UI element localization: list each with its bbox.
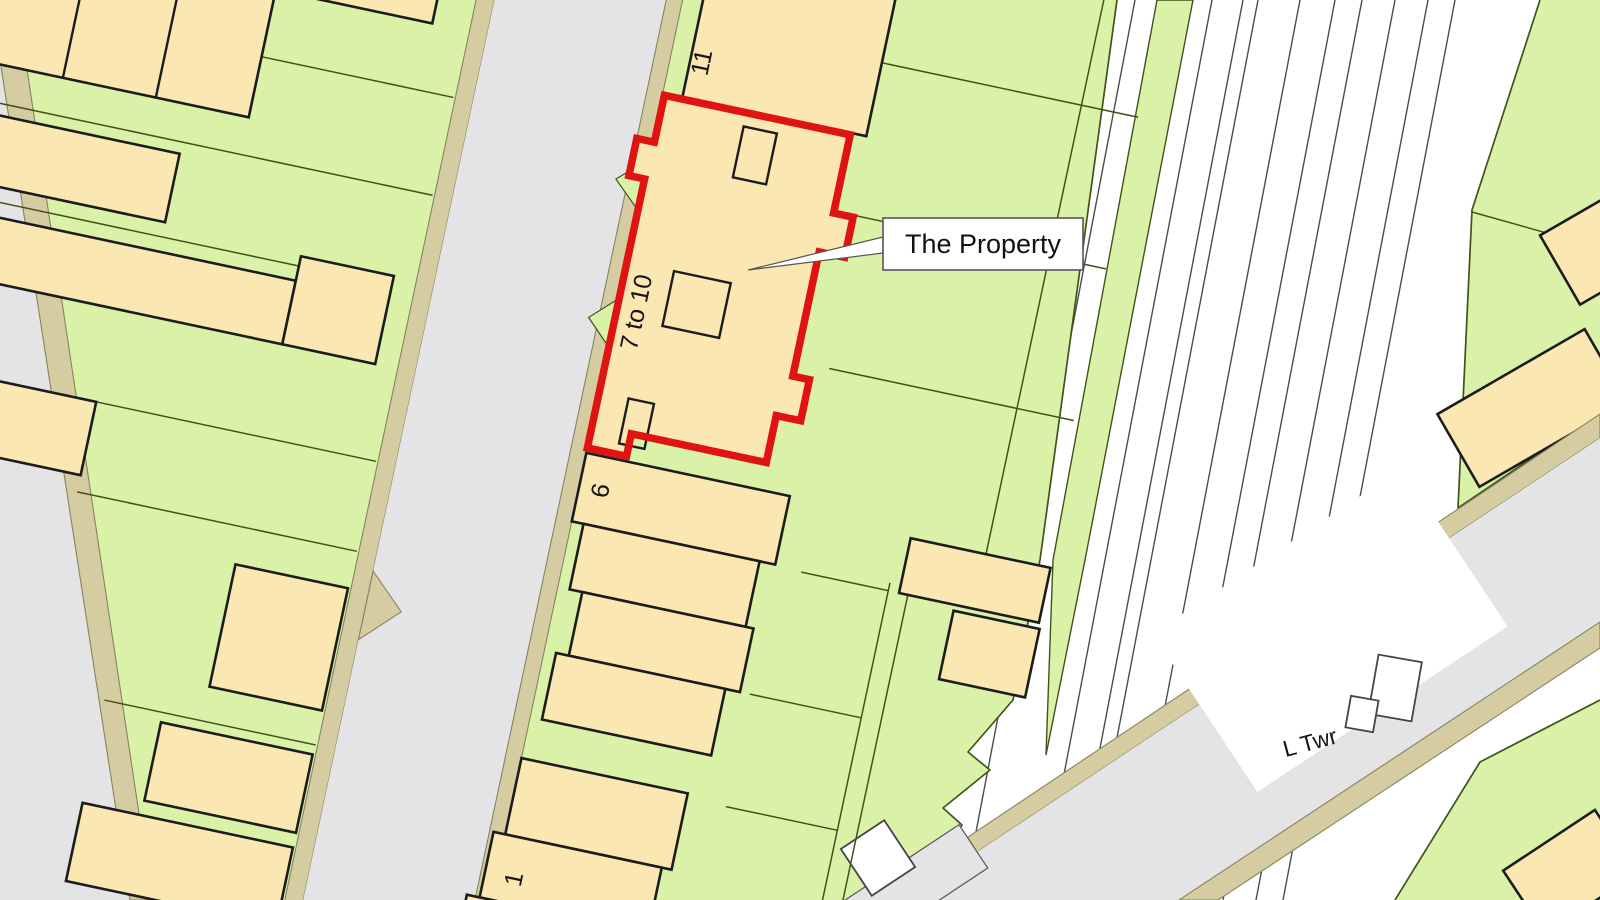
- building: [282, 256, 394, 364]
- tower-building-annex: [1345, 696, 1378, 732]
- site-plan: 11 7 to 10 6 1 L Twr The Property: [0, 0, 1600, 900]
- site-plan-map: 11 7 to 10 6 1 L Twr The Property: [0, 0, 1600, 900]
- building-detached: [209, 564, 347, 710]
- callout-label: The Property: [905, 229, 1062, 259]
